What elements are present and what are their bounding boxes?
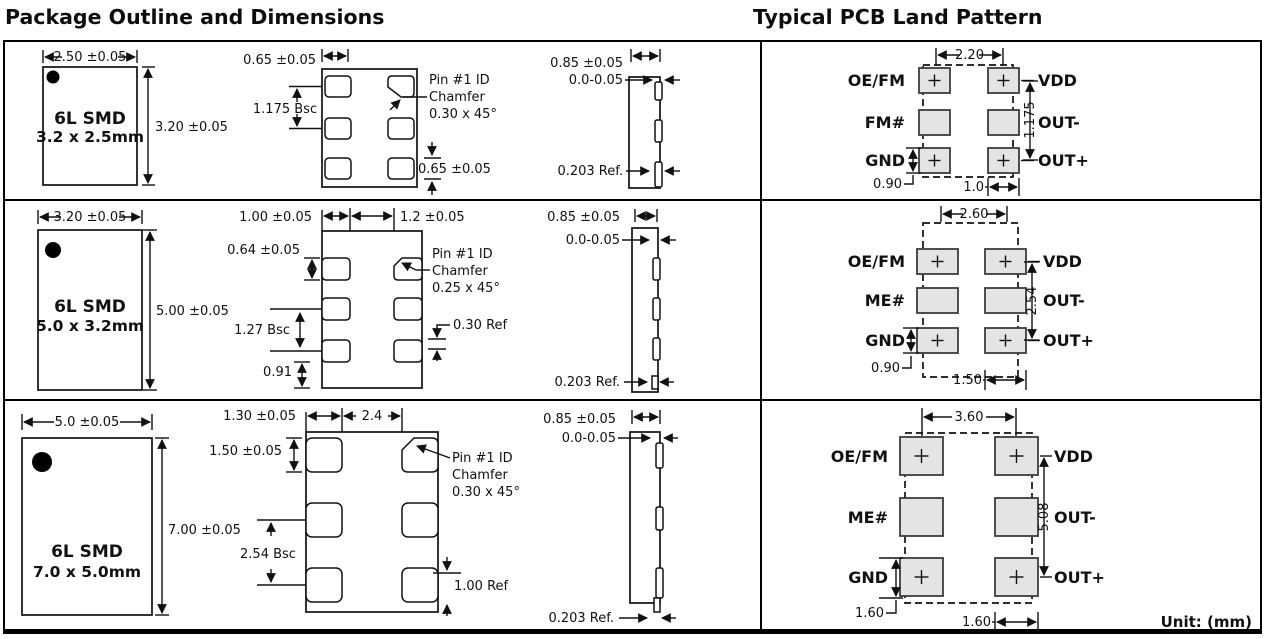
pad-width-dimension: 0.65 ±0.05 xyxy=(243,49,348,68)
pad-pitch-dimension: 1.175 Bsc xyxy=(253,87,322,129)
package-name: 6L SMD xyxy=(54,297,126,317)
land-width-text: 2.60 xyxy=(960,207,989,222)
row2-side-view: 0.85 ±0.05 0.0-0.05 0.203 Ref. xyxy=(547,209,676,392)
pad-width-text: 1.50 xyxy=(953,373,982,388)
bottom-offset-text: 0.91 xyxy=(263,365,292,380)
pin-label-out-minus: OUT- xyxy=(1043,291,1085,310)
land-pads xyxy=(919,68,1019,173)
height-dim-text: 7.00 ±0.05 xyxy=(168,523,241,538)
pad-width-dimension: 1.00 ±0.05 xyxy=(239,210,348,225)
width-dim-text: 3.20 ±0.05 xyxy=(54,210,127,225)
row1-package-drawings: 6L SMD 3.2 x 2.5mm 2.50 ±0.05 3.20 ±0.05 xyxy=(4,40,760,199)
land-height-text: 2.54 xyxy=(1025,287,1040,316)
height-dim-text: 3.20 ±0.05 xyxy=(155,120,228,135)
side-height-text: 0.85 ±0.05 xyxy=(550,56,623,71)
pin-labels: OE/FM FM# GND VDD OUT- OUT+ xyxy=(848,71,1089,170)
pitch-text: 1.27 Bsc xyxy=(234,323,290,338)
land-pads xyxy=(917,249,1026,353)
row2-package-drawings: 6L SMD 5.0 x 3.2mm 3.20 ±0.05 5.00 ±0.05 xyxy=(4,200,760,399)
side-height-text: 0.85 ±0.05 xyxy=(543,412,616,427)
standoff-text: 0.0-0.05 xyxy=(566,233,620,248)
row3-side-view: 0.85 ±0.05 0.0-0.05 0.203 Ref. xyxy=(543,410,678,626)
row2-land-pattern: OE/FM ME# GND VDD OUT- OUT+ 2.60 2.54 0.… xyxy=(762,200,1262,399)
pad-height-dimension: 1.50 ±0.05 xyxy=(209,438,302,472)
gap-text: 1.2 ±0.05 xyxy=(400,210,465,225)
pin1-chamfer-pad xyxy=(394,258,422,280)
land-width-dimension: 2.60 xyxy=(941,206,1007,222)
pin-label-vdd: VDD xyxy=(1038,71,1077,90)
pin1-line3: 0.30 x 45° xyxy=(429,107,497,122)
pin-label-fm: FM# xyxy=(865,113,905,132)
row3-package-drawings: 6L SMD 7.0 x 5.0mm 5.0 ±0.05 7.00 ±0.05 xyxy=(4,400,760,631)
row3-land-pattern: OE/FM ME# GND VDD OUT- OUT+ 3.60 5.08 1.… xyxy=(762,400,1262,631)
pad-pitch-dimension: 1.27 Bsc xyxy=(234,309,322,351)
land-height-dimension: 5.08 xyxy=(1037,458,1052,575)
width-dim-text: 2.50 ±0.05 xyxy=(54,50,127,65)
pin1-line1: Pin #1 ID xyxy=(432,247,493,262)
pad-pitch-dimension: 2.54 Bsc xyxy=(240,520,306,585)
row2-outline-view: 6L SMD 5.0 x 3.2mm 3.20 ±0.05 5.00 ±0.05 xyxy=(36,210,229,390)
body-height-dimension: 0.85 ±0.05 xyxy=(547,209,657,225)
body-height-dimension: 0.85 ±0.05 xyxy=(543,410,660,427)
pin1-line1: Pin #1 ID xyxy=(429,73,490,88)
pad-gap-dimension: 2.4 xyxy=(344,409,400,424)
pad-width-dimension: 1.0 xyxy=(963,178,1019,196)
pad-width-text: 1.60 xyxy=(962,615,991,630)
lead-text: 0.203 Ref. xyxy=(554,375,620,390)
pad-height-text: 0.65 ±0.05 xyxy=(418,162,491,177)
corner-ref-dimension: 1.00 Ref xyxy=(433,557,509,616)
pad-width-text: 1.0 xyxy=(963,180,984,195)
pin-label-out-plus: OUT+ xyxy=(1054,568,1105,587)
body-height-dimension: 0.85 ±0.05 xyxy=(550,49,660,71)
pad-width-text: 0.65 ±0.05 xyxy=(243,53,316,68)
pin1-line2: Chamfer xyxy=(429,90,486,105)
pad-width-text: 1.00 ±0.05 xyxy=(239,210,312,225)
land-height-text: 1.175 xyxy=(1023,101,1038,138)
lead-thickness-dimension: 0.203 Ref. xyxy=(548,611,676,626)
side-height-text: 0.85 ±0.05 xyxy=(547,210,620,225)
pin-label-oe-fm: OE/FM xyxy=(848,252,905,271)
pad-height-text: 0.64 ±0.05 xyxy=(227,243,300,258)
lead-text: 0.203 Ref. xyxy=(548,611,614,626)
row3-top-view: 1.30 ±0.05 2.4 1.50 ±0.05 2.54 Bsc xyxy=(209,408,520,616)
land-width-dimension: 2.20 xyxy=(936,48,1003,66)
land-width-text: 3.60 xyxy=(955,410,984,425)
pin-label-gnd: GND xyxy=(865,331,905,350)
width-dimension: 3.20 ±0.05 xyxy=(38,210,142,225)
pitch-text: 1.175 Bsc xyxy=(253,102,317,117)
pin1-dot xyxy=(45,242,61,258)
unit-note: Unit: (mm) xyxy=(1161,613,1252,631)
pad-gap-dimension: 1.2 ±0.05 xyxy=(352,210,465,225)
pad-width-text: 1.30 ±0.05 xyxy=(223,409,296,424)
pin-labels: OE/FM ME# GND VDD OUT- OUT+ xyxy=(848,252,1094,350)
page-title-package-outline: Package Outline and Dimensions xyxy=(5,5,384,29)
pin-label-vdd: VDD xyxy=(1054,447,1093,466)
row1-land-pattern: OE/FM FM# GND VDD OUT- OUT+ 2.20 1.175 0… xyxy=(762,40,1262,199)
row1-outline-view: 6L SMD 3.2 x 2.5mm 2.50 ±0.05 3.20 ±0.05 xyxy=(36,50,228,185)
pad-height-dimension: 0.65 ±0.05 xyxy=(418,142,491,195)
height-dimension: 7.00 ±0.05 xyxy=(155,438,241,615)
pin-labels: OE/FM ME# GND VDD OUT- OUT+ xyxy=(831,447,1105,587)
height-dimension: 5.00 ±0.05 xyxy=(143,230,229,390)
land-width-dimension: 3.60 xyxy=(922,408,1016,436)
package-size: 3.2 x 2.5mm xyxy=(36,128,144,146)
pin1-line3: 0.25 x 45° xyxy=(432,281,500,296)
pad-height-text: 1.60 xyxy=(855,606,884,621)
height-dimension: 3.20 ±0.05 xyxy=(142,67,228,185)
corner-ref-dimension: 0.30 Ref xyxy=(428,318,508,361)
pin-label-oe-fm: OE/FM xyxy=(848,71,905,90)
row1-top-view: 0.65 ±0.05 1.175 Bsc Pin #1 ID Chamfer 0… xyxy=(243,49,497,195)
pad-height-text: 0.90 xyxy=(871,361,900,376)
standoff-text: 0.0-0.05 xyxy=(562,431,616,446)
row2-top-view: 1.00 ±0.05 1.2 ±0.05 0.64 ±0.05 1.27 Bsc… xyxy=(227,208,507,388)
pin-label-out-minus: OUT- xyxy=(1038,113,1080,132)
pin-label-out-plus: OUT+ xyxy=(1038,151,1089,170)
row3-outline-view: 6L SMD 7.0 x 5.0mm 5.0 ±0.05 7.00 ±0.05 xyxy=(22,414,241,615)
pin1-dot xyxy=(47,71,60,84)
corner-ref-text: 0.30 Ref xyxy=(453,318,508,333)
land-height-text: 5.08 xyxy=(1037,503,1052,532)
standoff-dimension: 0.0-0.05 xyxy=(569,73,680,88)
pad-height-text: 0.90 xyxy=(873,177,902,192)
land-pads xyxy=(900,437,1038,596)
height-dim-text: 5.00 ±0.05 xyxy=(156,304,229,319)
pin1-dot xyxy=(32,452,52,472)
pad-width-dimension: 1.50 xyxy=(953,370,1026,390)
package-name: 6L SMD xyxy=(54,109,126,129)
land-width-text: 2.20 xyxy=(955,48,984,63)
pin1-line1: Pin #1 ID xyxy=(452,451,513,466)
package-name: 6L SMD xyxy=(51,542,123,562)
pin-label-gnd: GND xyxy=(848,568,888,587)
pin-label-out-plus: OUT+ xyxy=(1043,331,1094,350)
pad-height-text: 1.50 ±0.05 xyxy=(209,444,282,459)
pin1-line2: Chamfer xyxy=(452,468,509,483)
row1-side-view: 0.85 ±0.05 0.0-0.05 0.203 Ref. xyxy=(550,49,680,188)
pin-label-me: ME# xyxy=(848,508,888,527)
pin1-line3: 0.30 x 45° xyxy=(452,485,520,500)
standoff-dimension: 0.0-0.05 xyxy=(566,233,676,248)
corner-ref-text: 1.00 Ref xyxy=(454,579,509,594)
pin-label-oe-fm: OE/FM xyxy=(831,447,888,466)
pad-width-dimension: 1.60 xyxy=(962,612,1038,631)
pad-width-dimension: 1.30 ±0.05 xyxy=(223,409,340,424)
datasheet-figure: Package Outline and Dimensions Typical P… xyxy=(0,0,1266,639)
pin-label-out-minus: OUT- xyxy=(1054,508,1096,527)
pin1-line2: Chamfer xyxy=(432,264,489,279)
land-height-dimension: 1.175 xyxy=(1023,81,1038,160)
width-dim-text: 5.0 ±0.05 xyxy=(55,415,120,430)
pin-label-gnd: GND xyxy=(865,151,905,170)
standoff-text: 0.0-0.05 xyxy=(569,73,623,88)
pin-label-vdd: VDD xyxy=(1043,252,1082,271)
gap-text: 2.4 xyxy=(362,409,383,424)
package-size: 5.0 x 3.2mm xyxy=(36,317,144,335)
package-size: 7.0 x 5.0mm xyxy=(33,563,141,581)
bottom-offset-dimension: 0.91 xyxy=(263,362,310,388)
pad-height-dimension: 0.64 ±0.05 xyxy=(227,243,320,280)
lead-text: 0.203 Ref. xyxy=(557,164,623,179)
pitch-text: 2.54 Bsc xyxy=(240,547,296,562)
page-title-land-pattern: Typical PCB Land Pattern xyxy=(753,5,1042,29)
width-dimension: 5.0 ±0.05 xyxy=(22,414,152,430)
width-dimension: 2.50 ±0.05 xyxy=(43,50,137,65)
pin-label-me: ME# xyxy=(865,291,905,310)
